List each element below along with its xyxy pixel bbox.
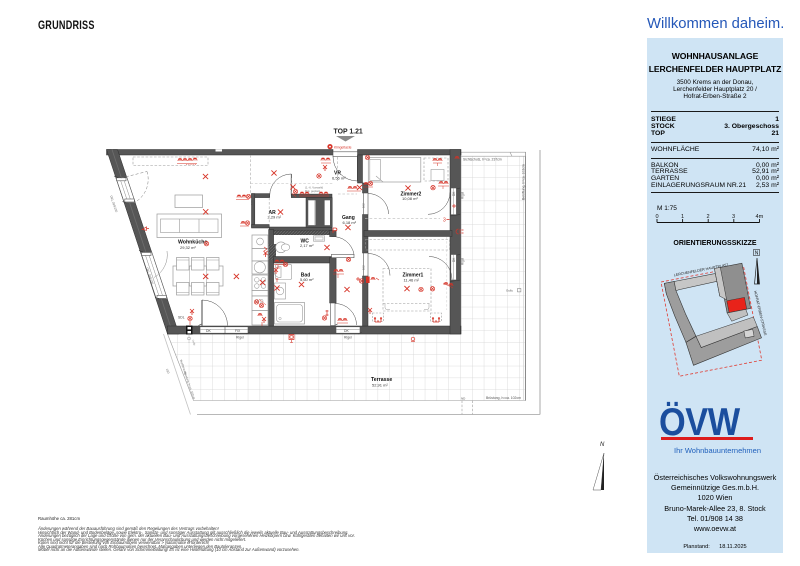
svg-text:2,29 m²: 2,29 m² [268, 215, 282, 220]
svg-text:DKL 285/230: DKL 285/230 [109, 195, 119, 213]
svg-text:10,08 m²: 10,08 m² [402, 196, 418, 201]
svg-text:52,91 m²: 52,91 m² [372, 383, 388, 388]
svg-text:102: 102 [362, 203, 366, 208]
svg-text:Gully: Gully [506, 289, 513, 293]
svg-text:102: 102 [362, 265, 366, 270]
svg-text:5,60 m²: 5,60 m² [300, 277, 314, 282]
svg-text:Belüftung, h=ca. 102cm: Belüftung, h=ca. 102cm [522, 164, 526, 200]
svg-text:102: 102 [250, 200, 254, 205]
svg-text:6,56 m²: 6,56 m² [332, 176, 346, 181]
svg-text:2,17 m²: 2,17 m² [300, 243, 314, 248]
svg-text:Rigel: Rigel [344, 336, 352, 340]
svg-text:3: 3 [443, 218, 446, 224]
svg-text:N: N [755, 251, 759, 257]
svg-text:DK: DK [344, 329, 349, 333]
svg-text:Rigel: Rigel [236, 336, 244, 340]
svg-text:N: N [600, 442, 605, 448]
svg-text:Rigel: Rigel [461, 257, 465, 265]
svg-text:Rigel: Rigel [461, 191, 465, 199]
svg-text:DK: DK [206, 329, 211, 333]
svg-text:TOP 1.21: TOP 1.21 [334, 129, 363, 136]
svg-text:SDL: SDL [178, 315, 185, 319]
svg-text:FIX: FIX [235, 329, 241, 333]
svg-text:Brüstung, h=ca. 102cm: Brüstung, h=ca. 102cm [486, 396, 521, 400]
svg-text:11,46 m²: 11,46 m² [404, 277, 420, 282]
svg-text:Klingeltaste: Klingeltaste [334, 146, 352, 150]
svg-text:29,32 m²: 29,32 m² [180, 245, 196, 250]
svg-text:6,18 m²: 6,18 m² [343, 220, 357, 225]
svg-text:Sichtschutz, h=ca. 237cm: Sichtschutz, h=ca. 237cm [463, 158, 502, 162]
svg-text:150: 150 [165, 368, 171, 374]
